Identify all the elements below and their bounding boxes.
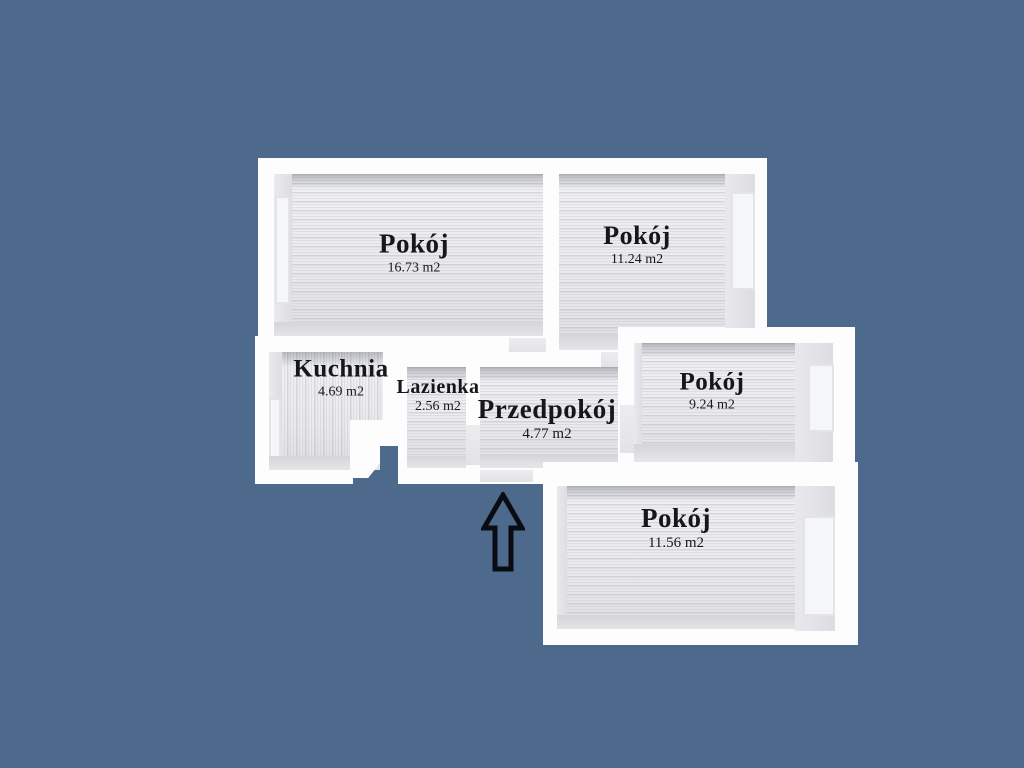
wall (258, 158, 767, 174)
room-name: Pokój (680, 370, 745, 396)
wall-inner-face (795, 343, 833, 462)
room-label-pokoj-1: Pokój 16.73 m2 (379, 231, 449, 276)
window-icon (808, 364, 834, 432)
door-opening (509, 338, 546, 352)
wall (543, 158, 559, 340)
room-area: 16.73 m2 (379, 260, 449, 275)
wall (255, 336, 269, 484)
wall (258, 158, 274, 352)
room-area: 2.56 m2 (397, 400, 480, 415)
room-name: Kuchnia (293, 357, 388, 383)
room-label-pokoj-3: Pokój 9.24 m2 (680, 370, 745, 413)
wall (543, 462, 557, 645)
window-icon (275, 196, 290, 304)
entrance-door-opening (480, 470, 533, 482)
exterior-notch (380, 446, 398, 498)
window-icon (269, 398, 281, 462)
room-label-kuchnia: Kuchnia 4.69 m2 (293, 357, 388, 400)
wall-inner-face (407, 456, 466, 468)
wall-inner-face (795, 486, 835, 631)
room-area: 9.24 m2 (680, 397, 745, 412)
wall-inner-face (725, 174, 755, 328)
room-name: Pokój (603, 223, 671, 250)
entrance-arrow-icon (481, 492, 525, 572)
floor-plan: Pokój 16.73 m2 Pokój 11.24 m2 Kuchnia 4.… (0, 0, 1024, 768)
wall-inner-face (634, 444, 795, 462)
room-label-lazienka: Lazienka 2.56 m2 (397, 377, 480, 415)
room-area: 11.56 m2 (641, 535, 711, 552)
wall-inner-face (274, 174, 292, 338)
wall-inner-face (269, 352, 282, 470)
room-name: Pokój (641, 505, 711, 533)
room-area: 11.24 m2 (603, 252, 671, 267)
wall-inner-face (556, 486, 567, 631)
wall (395, 350, 634, 367)
wall (255, 470, 353, 484)
room-label-pokoj-2: Pokój 11.24 m2 (603, 223, 671, 267)
room-label-przedpokoj: Przedpokój 4.77 m2 (478, 396, 616, 442)
room-name: Przedpokój (478, 396, 616, 424)
room-area: 4.69 m2 (293, 384, 388, 399)
room-name: Pokój (379, 231, 449, 259)
room-label-pokoj-4: Pokój 11.56 m2 (641, 505, 711, 551)
room-name: Lazienka (397, 377, 480, 397)
door-opening (601, 352, 618, 367)
window-icon (803, 516, 835, 616)
door-opening (620, 405, 634, 453)
window-icon (731, 192, 755, 290)
room-area: 4.77 m2 (478, 426, 616, 443)
